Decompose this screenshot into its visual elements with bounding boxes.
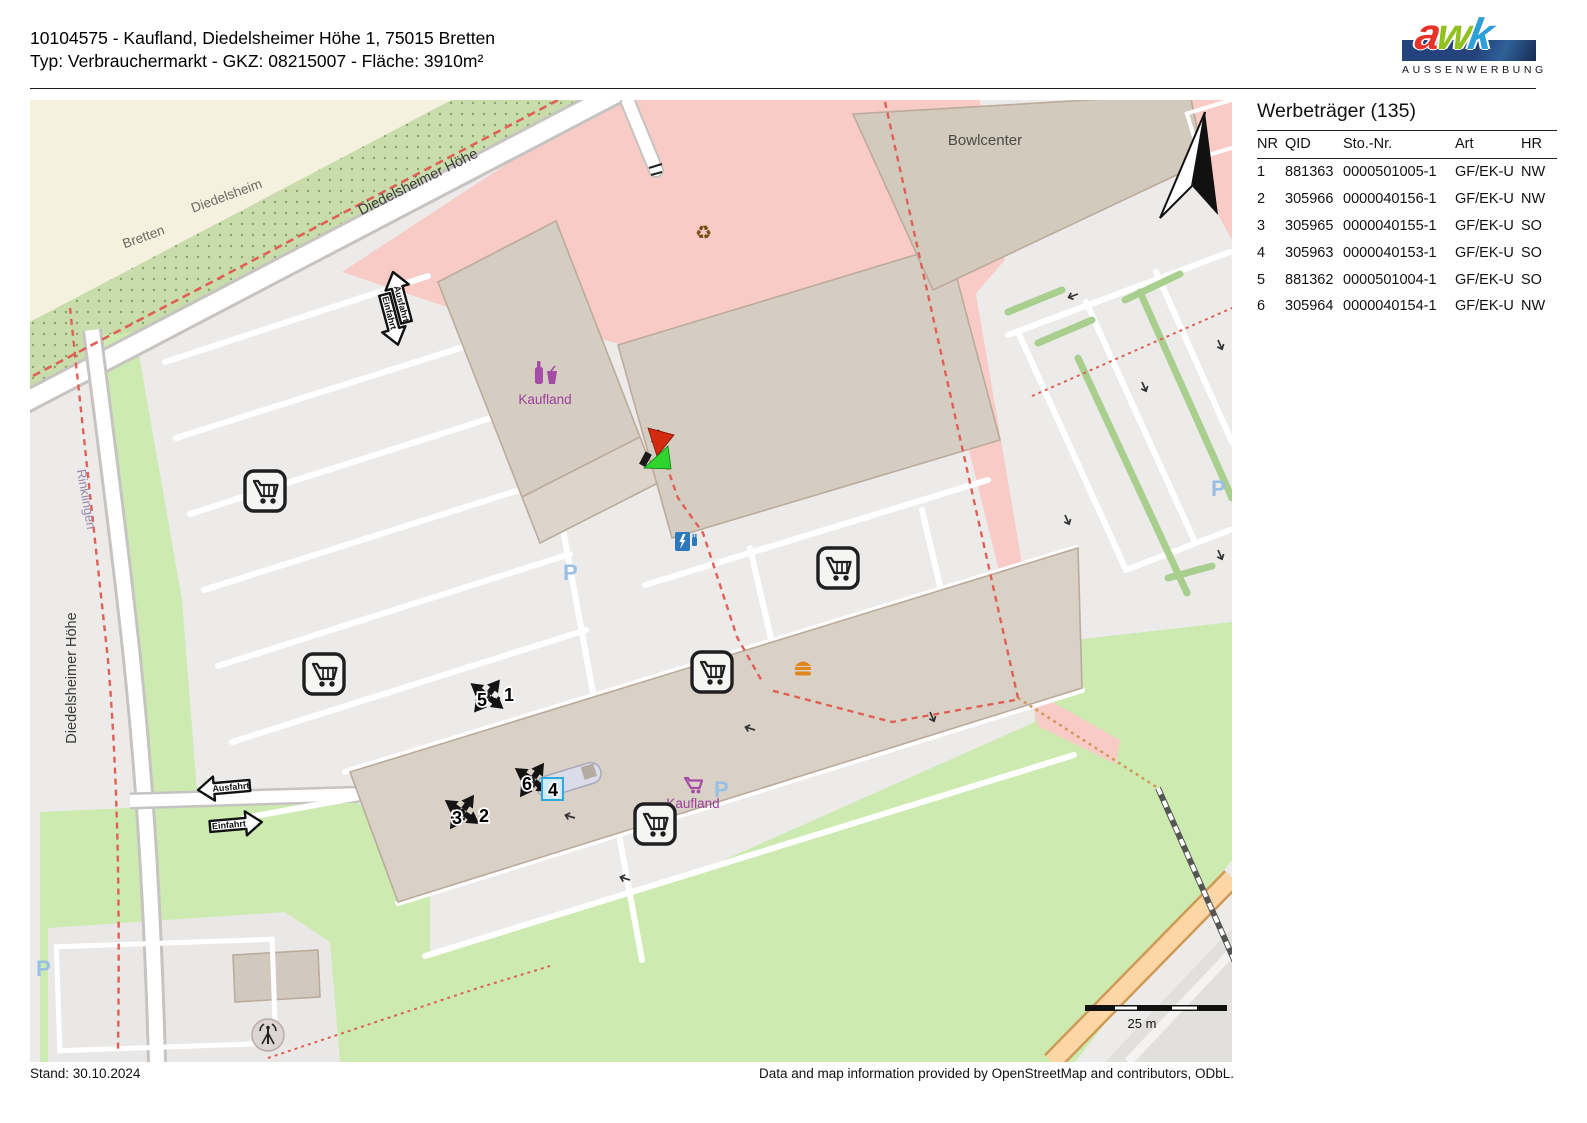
cell-qid: 305964 [1285,293,1343,320]
cell-nr: 3 [1257,213,1285,240]
cell-art: GF/EK-U [1455,159,1521,186]
cell-qid: 305966 [1285,186,1343,213]
scale-label: 25 m [1128,1016,1157,1031]
cell-nr: 2 [1257,186,1285,213]
cell-hr: NW [1521,293,1557,320]
site-plan-page: 10104575 - Kaufland, Diedelsheimer Höhe … [0,0,1587,1123]
cell-art: GF/EK-U [1455,266,1521,293]
parking-p: P [563,560,578,585]
cell-hr: NW [1521,159,1557,186]
location-title: 10104575 - Kaufland, Diedelsheimer Höhe … [30,27,495,50]
marker-number: 3 [452,808,462,828]
cell-stonr: 0000040153-1 [1343,239,1455,266]
stand-date: Stand: 30.10.2024 [30,1066,140,1081]
cell-art: GF/EK-U [1455,213,1521,240]
cell-art: GF/EK-U [1455,186,1521,213]
cell-hr: SO [1521,239,1557,266]
marker-number: 5 [477,690,487,710]
werbetraeger-table: NR QID Sto.-Nr. Art HR 18813630000501005… [1257,130,1557,320]
marker-number: 4 [548,780,558,800]
logo-wordmark: awk [1412,10,1495,60]
cart-icon [635,804,675,844]
cell-hr: NW [1521,186,1557,213]
map-canvas: Diedelsheimer Höhe Diedelsheimer Höhe Di… [30,100,1232,1062]
cell-nr: 5 [1257,266,1285,293]
cell-art: GF/EK-U [1455,239,1521,266]
cell-hr: SO [1521,266,1557,293]
cell-nr: 6 [1257,293,1285,320]
cell-nr: 1 [1257,159,1285,186]
header-divider [30,88,1536,89]
table-row: 18813630000501005-1GF/EK-UNW [1257,159,1557,186]
col-header-nr: NR [1257,131,1285,159]
street-label-vertical: Diedelsheimer Höhe [64,612,80,743]
col-header-art: Art [1455,131,1521,159]
col-header-stonr: Sto.-Nr. [1343,131,1455,159]
awk-logo: awk AUSSENWERBUNG [1402,18,1536,90]
col-header-hr: HR [1521,131,1557,159]
parking-p: P [36,956,51,981]
kaufland-poi-label: Kaufland [518,392,571,407]
marker-number: 1 [504,685,514,705]
cell-stonr: 0000501005-1 [1343,159,1455,186]
cart-icon [818,548,858,588]
page-header: 10104575 - Kaufland, Diedelsheimer Höhe … [30,27,495,73]
werbetraeger-panel: Werbeträger (135) NR QID Sto.-Nr. Art HR… [1257,100,1557,320]
antenna-icon [252,1019,284,1051]
cart-icon [304,654,344,694]
cell-qid: 305965 [1285,213,1343,240]
panel-title: Werbeträger (135) [1257,100,1557,123]
cell-qid: 881363 [1285,159,1343,186]
cart-icon [245,471,285,511]
table-header-row: NR QID Sto.-Nr. Art HR [1257,131,1557,159]
bowlcenter-label: Bowlcenter [948,132,1022,149]
recycling-icon: ♻ [695,223,712,244]
logo-subtitle: AUSSENWERBUNG [1402,64,1536,76]
parking-p: P [1211,476,1226,501]
table-row: 33059650000040155-1GF/EK-USO [1257,213,1557,240]
table-row: 63059640000040154-1GF/EK-UNW [1257,293,1557,320]
marker-number: 6 [522,774,532,794]
cell-stonr: 0000040155-1 [1343,213,1455,240]
marker-number: 2 [479,806,489,826]
cart-icon [692,652,732,692]
table-row: 58813620000501004-1GF/EK-USO [1257,266,1557,293]
map-svg: Diedelsheimer Höhe Diedelsheimer Höhe Di… [30,100,1232,1062]
table-row: 43059630000040153-1GF/EK-USO [1257,239,1557,266]
cell-stonr: 0000040154-1 [1343,293,1455,320]
cell-nr: 4 [1257,239,1285,266]
cell-stonr: 0000040156-1 [1343,186,1455,213]
table-row: 23059660000040156-1GF/EK-UNW [1257,186,1557,213]
cell-art: GF/EK-U [1455,293,1521,320]
cell-hr: SO [1521,213,1557,240]
osm-attribution: Data and map information provided by Ope… [759,1066,1234,1081]
col-header-qid: QID [1285,131,1343,159]
location-subtitle: Typ: Verbrauchermarkt - GKZ: 08215007 - … [30,50,495,73]
cell-qid: 881362 [1285,266,1343,293]
cell-stonr: 0000501004-1 [1343,266,1455,293]
cell-qid: 305963 [1285,239,1343,266]
